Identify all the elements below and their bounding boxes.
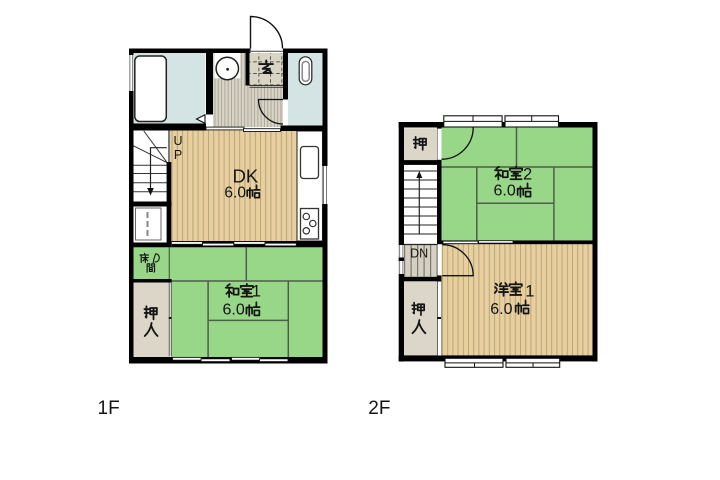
svg-text:6.0: 6.0: [493, 183, 515, 200]
svg-text:1F: 1F: [98, 398, 120, 419]
svg-text:P: P: [174, 148, 182, 162]
svg-text:1: 1: [525, 282, 534, 300]
svg-text:DN: DN: [410, 247, 428, 261]
svg-text:DK: DK: [233, 165, 259, 186]
svg-text:6.0: 6.0: [224, 184, 246, 201]
svg-text:1: 1: [252, 283, 261, 301]
svg-text:U: U: [173, 134, 182, 148]
svg-text:2F: 2F: [368, 398, 390, 419]
svg-text:6.0: 6.0: [222, 301, 244, 318]
svg-text:6.0: 6.0: [490, 301, 512, 318]
svg-text:2: 2: [523, 166, 532, 184]
